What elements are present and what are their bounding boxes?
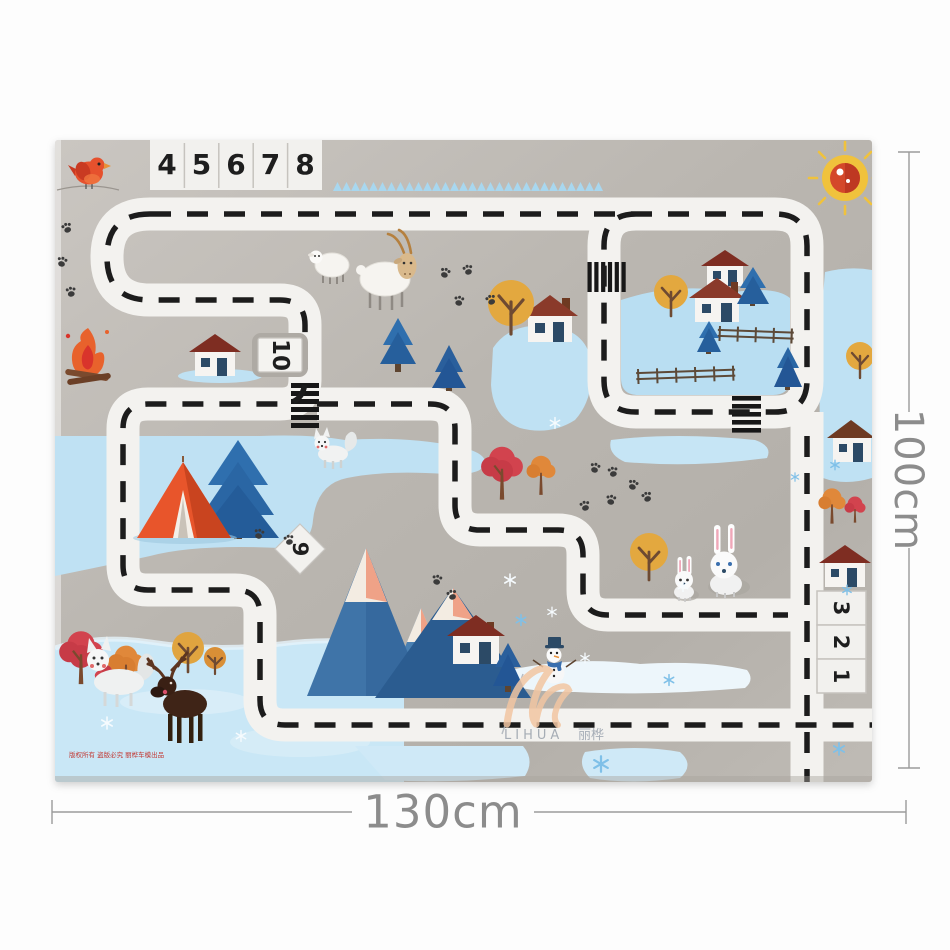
mat-bottom-edge (55, 776, 872, 782)
brand-name-latin: LIHUA (504, 728, 563, 743)
product-photo-page: { "annotations": { "height_label": "100c… (0, 0, 950, 950)
parking-number: 5 (192, 148, 211, 181)
width-dimension-label: 130cm (363, 786, 522, 839)
brand-name-cjk: 丽桦 (578, 728, 604, 743)
copyright-text: 版权所有 盗版必究 丽桦车模出品 (69, 750, 164, 759)
parking-number: 2 (829, 635, 853, 650)
product-photo: 4 5 6 7 8 10 9 3 (0, 0, 950, 950)
parking-number: 10 (267, 339, 293, 371)
parking-number: 4 (157, 148, 176, 181)
parking-column-right: 3 2 1 (817, 591, 866, 693)
parking-number: 6 (226, 148, 245, 181)
parking-number: 9 (288, 542, 312, 557)
parking-number: 3 (829, 601, 853, 616)
height-dimension-label: 100cm (885, 409, 931, 551)
parking-number: 1 (829, 669, 853, 684)
parking-number: 7 (261, 148, 280, 181)
parking-row-top: 4 5 6 7 8 (150, 140, 322, 190)
parking-number: 8 (295, 148, 314, 181)
play-mat: 4 5 6 7 8 10 9 3 (55, 140, 881, 782)
region-pond-below-loop (610, 436, 768, 464)
parking-spot-10: 10 (252, 333, 308, 377)
